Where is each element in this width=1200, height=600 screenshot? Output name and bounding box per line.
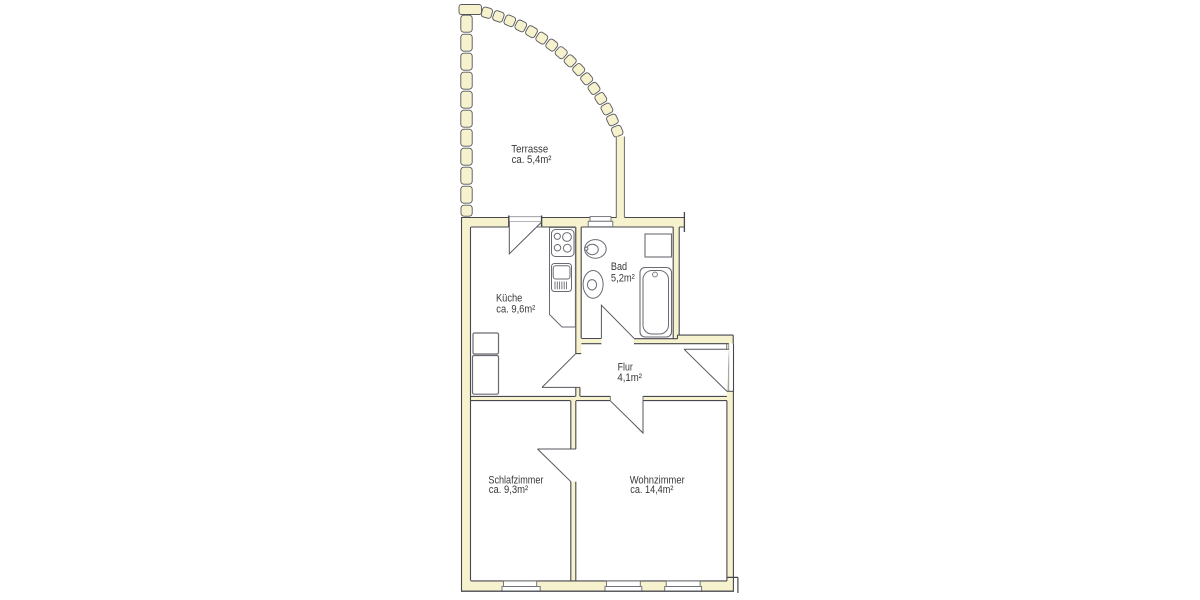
svg-text:5,2m²: 5,2m² <box>611 273 635 285</box>
svg-text:4,1m²: 4,1m² <box>617 372 642 384</box>
svg-text:ca. 14,4m²: ca. 14,4m² <box>630 484 673 496</box>
svg-text:ca. 9,6m²: ca. 9,6m² <box>496 304 535 316</box>
svg-text:Bad: Bad <box>611 261 627 273</box>
svg-text:ca. 9,3m²: ca. 9,3m² <box>489 484 529 496</box>
svg-text:Küche: Küche <box>496 292 522 304</box>
svg-text:ca. 5,4m²: ca. 5,4m² <box>512 154 552 166</box>
